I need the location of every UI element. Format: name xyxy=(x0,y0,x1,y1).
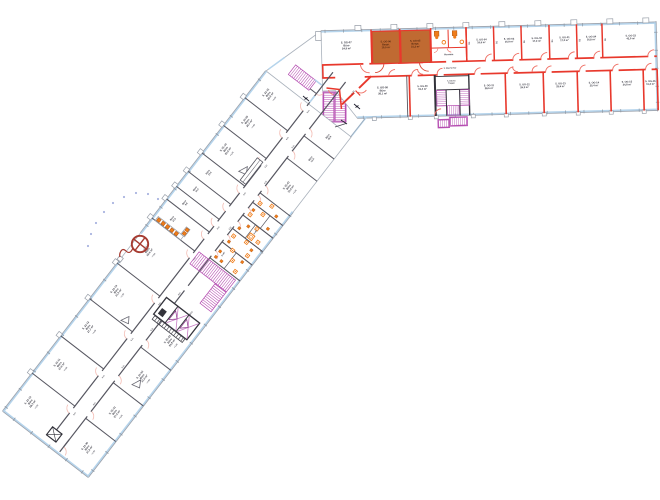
svg-text:17,2 m²: 17,2 m² xyxy=(532,39,541,43)
svg-text:19,9 m²: 19,9 m² xyxy=(382,45,391,49)
svg-text:15,4 m²: 15,4 m² xyxy=(418,87,427,91)
svg-text:25,6 m²: 25,6 m² xyxy=(556,84,565,88)
svg-text:Vorraum: Vorraum xyxy=(444,54,453,56)
svg-text:5. OG-F1 Flur: 5. OG-F1 Flur xyxy=(444,67,457,69)
svg-text:16,6 m²: 16,6 m² xyxy=(477,40,486,44)
svg-text:17,0 m²: 17,0 m² xyxy=(560,38,569,42)
svg-text:42,9 m²: 42,9 m² xyxy=(626,36,635,40)
svg-text:16,8 m²: 16,8 m² xyxy=(587,37,596,41)
svg-text:26,1 m²: 26,1 m² xyxy=(378,91,387,95)
svg-text:25,4 m²: 25,4 m² xyxy=(590,83,599,87)
svg-text:21,2 m²: 21,2 m² xyxy=(411,44,420,48)
svg-text:26,3 m²: 26,3 m² xyxy=(520,85,529,89)
svg-text:24,9 m²: 24,9 m² xyxy=(342,46,351,50)
svg-text:24,8 m²: 24,8 m² xyxy=(623,82,632,86)
svg-text:28,6 m²: 28,6 m² xyxy=(485,86,494,90)
svg-text:11,2 m²: 11,2 m² xyxy=(646,82,655,86)
svg-text:16,9 m²: 16,9 m² xyxy=(505,39,514,43)
svg-text:Treppe: Treppe xyxy=(448,83,455,85)
